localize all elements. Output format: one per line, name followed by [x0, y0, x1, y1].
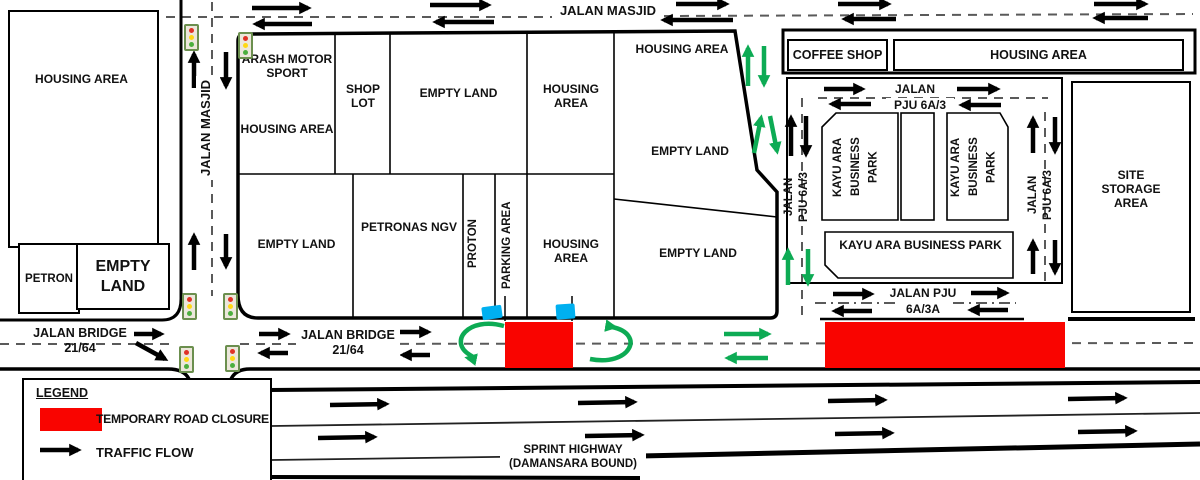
legend-panel: LEGEND TEMPORARY ROAD CLOSURE TRAFFIC FL…	[22, 378, 272, 480]
empty-land-sw-label: EMPTY LAND	[90, 257, 156, 295]
road-closure-block-1	[505, 322, 573, 368]
legend-closure-label: TEMPORARY ROAD CLOSURE	[96, 412, 269, 426]
housing-area-ne-box: HOUSING AREA	[893, 39, 1184, 71]
jalan-pju-6a3-top-label-2: PJU 6A/3	[886, 98, 954, 112]
jalan-masjid-west-label: JALAN MASJID	[196, 76, 220, 180]
legend-flow-label: TRAFFIC FLOW	[96, 445, 193, 460]
jalan-masjid-top-label: JALAN MASJID	[552, 3, 664, 18]
petron-box: PETRON	[18, 243, 80, 314]
coffee-shop-box: COFFEE SHOP	[787, 39, 888, 71]
traffic-light-icon	[184, 24, 199, 51]
arash-motor-sport-label: ARASH MOTOR SPORT	[240, 52, 334, 80]
jalan-pju-6a3a-label-2: 6A/3A	[896, 302, 950, 316]
flow-arrow-icon	[38, 442, 88, 458]
housing-area-west-label: HOUSING AREA	[8, 72, 155, 86]
empty-land-sw-box: EMPTY LAND	[76, 243, 170, 310]
housing-area-row2-label: HOUSING AREA	[528, 237, 614, 265]
jalan-bridge-west-label: JALAN BRIDGE 21/64	[24, 326, 136, 356]
jalan-pju-6a3a-label-1: JALAN PJU	[886, 286, 960, 300]
traffic-light-icon	[225, 345, 240, 372]
road-closure-block-2	[825, 322, 1065, 368]
parking-area-label: PARKING AREA	[499, 193, 525, 297]
traffic-light-icon	[238, 32, 253, 59]
empty-land-east-upper-label: EMPTY LAND	[630, 144, 750, 158]
traffic-light-icon	[179, 346, 194, 373]
housing-area-mid-label: HOUSING AREA	[528, 82, 614, 110]
petron-label: PETRON	[25, 273, 73, 285]
site-storage-area-label: SITE STORAGE AREA	[1093, 168, 1169, 210]
traffic-light-icon	[182, 293, 197, 320]
jalan-pju-6a3-top-label-1: JALAN	[884, 82, 946, 96]
kayu-ara-park-main-label: KAYU ARA BUSINESS PARK	[833, 238, 1008, 252]
empty-land-east-lower-label: EMPTY LAND	[638, 246, 758, 260]
coffee-shop-label: COFFEE SHOP	[793, 48, 883, 62]
housing-area-arash-label: HOUSING AREA	[240, 122, 334, 136]
shop-lot-label: SHOP LOT	[336, 82, 390, 110]
housing-area-west-box	[8, 10, 159, 248]
empty-land-row2-label: EMPTY LAND	[240, 237, 353, 251]
u-turn-arrow-icon	[461, 324, 504, 359]
jalan-pju-6a3-west-label: JALAN PJU 6A/3	[782, 162, 818, 232]
traffic-light-icon	[223, 293, 238, 320]
petronas-ngv-label: PETRONAS NGV	[356, 220, 462, 234]
jalan-pju-6a3-east-label: JALAN PJU 6A/3	[1026, 160, 1062, 230]
housing-area-ne-label: HOUSING AREA	[990, 48, 1087, 62]
closure-swatch-icon	[40, 408, 102, 431]
housing-area-inner-ne-label: HOUSING AREA	[616, 42, 748, 56]
kayu-ara-park-1-label: KAYU ARA BUSINESS PARK	[830, 116, 888, 218]
sprint-highway-label: SPRINT HIGHWAY (DAMANSARA BOUND)	[500, 444, 646, 471]
empty-land-top-label: EMPTY LAND	[390, 86, 527, 100]
barrier-flag-icon	[481, 305, 503, 321]
legend-title: LEGEND	[36, 386, 88, 400]
kayu-ara-park-2-label: KAYU ARA BUSINESS PARK	[948, 116, 1006, 218]
jalan-bridge-mid-label: JALAN BRIDGE 21/64	[296, 328, 400, 358]
road-closure-diagram: HOUSING AREA PETRON EMPTY LAND ARASH MOT…	[0, 0, 1200, 480]
barrier-flag-icon	[555, 303, 575, 319]
proton-label: PROTON	[465, 210, 491, 278]
